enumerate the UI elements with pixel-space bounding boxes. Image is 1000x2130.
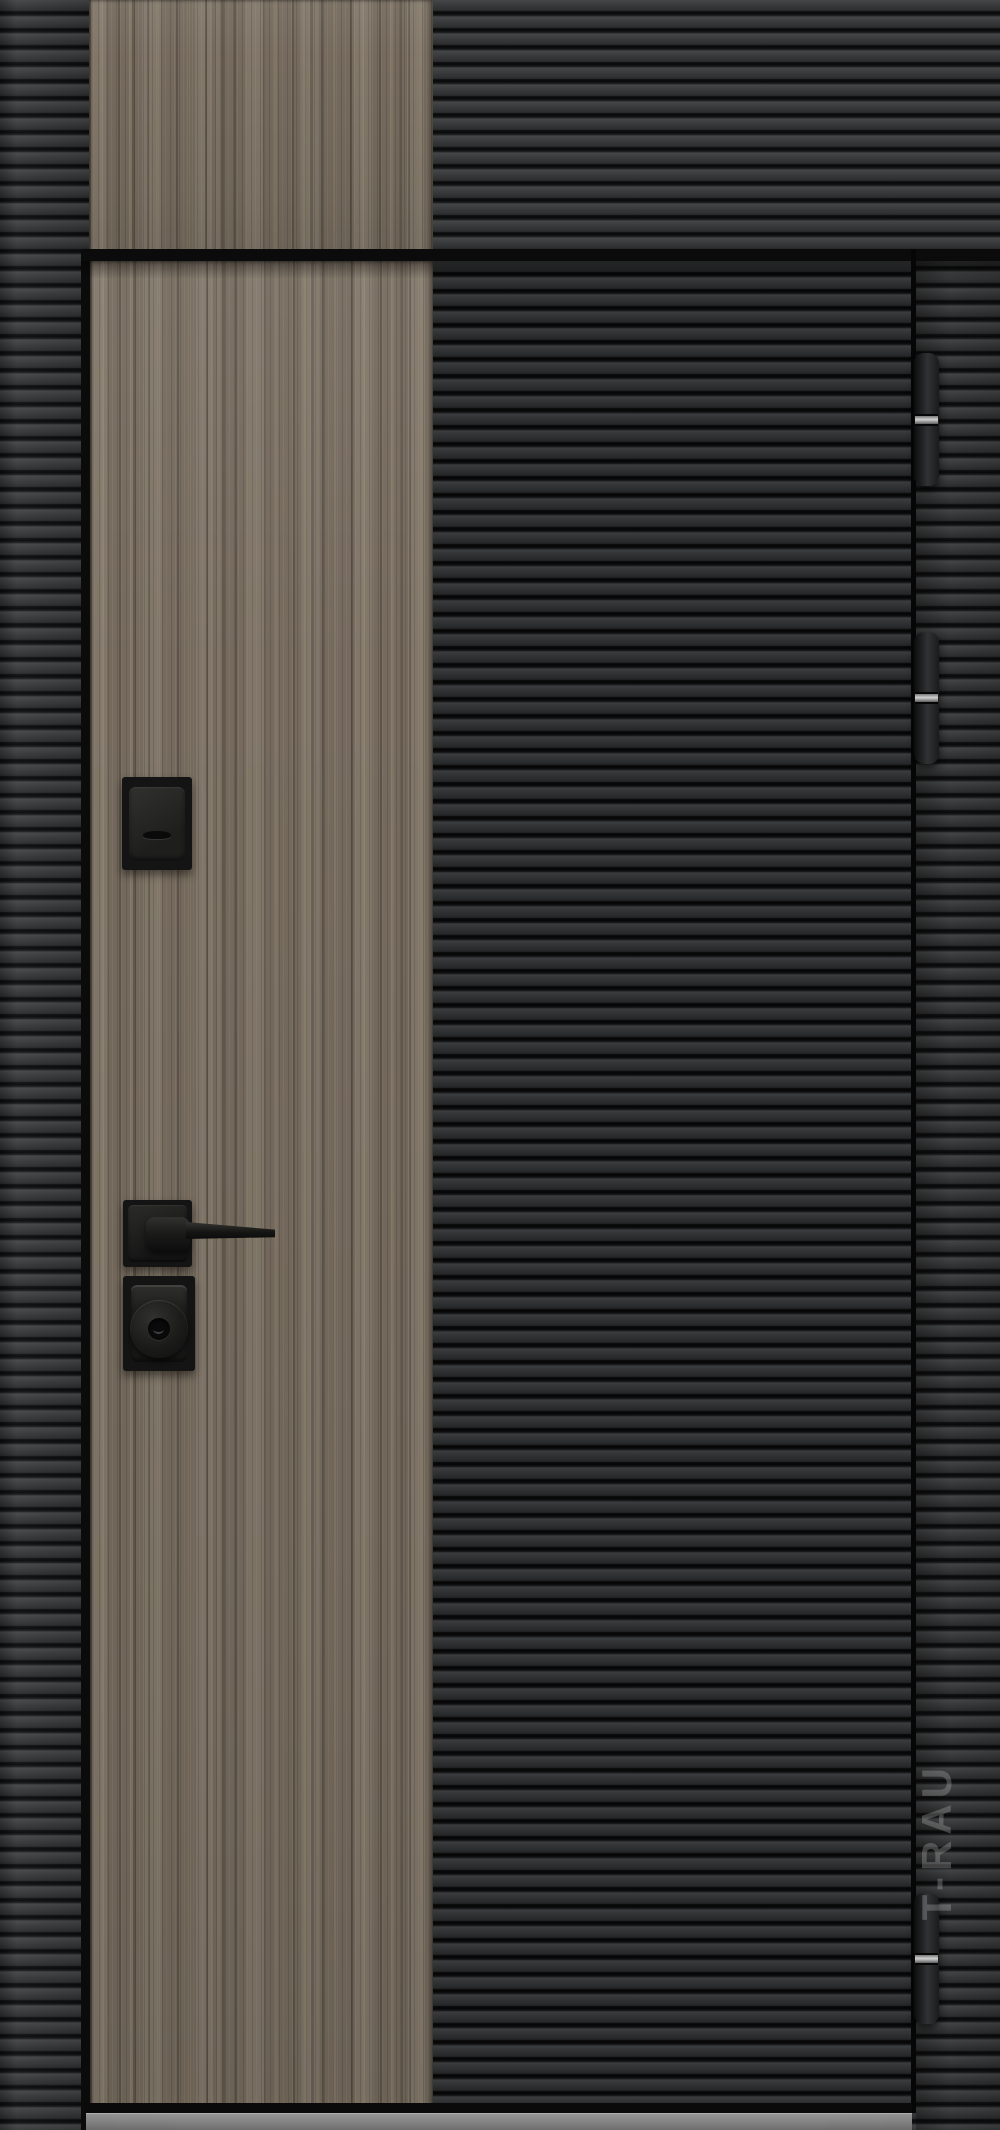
deadbolt-thumbturn-plate [122,777,192,870]
keyhole [148,1318,170,1340]
seam-shadow [81,261,1000,279]
brand-watermark-text: T-RAU [913,1762,961,1920]
door-frame-left-edge [81,249,90,2130]
hinge-middle [914,632,939,764]
handle-lever-neck [146,1217,190,1251]
door-fluted-panel [433,261,911,2108]
hinge-pin-band [915,694,938,702]
thumbturn-lever [143,831,171,839]
cylinder-inner-bevel [131,1285,187,1362]
left-wall-fluted-cladding [0,0,90,2130]
transom-wood-panel [89,0,433,255]
hinge-pin-band [915,416,938,424]
door-bottom-edge [86,2103,912,2113]
metal-threshold [86,2113,912,2130]
brand-watermark: T-RAU [908,1712,966,1970]
top-frame-seam [81,249,1000,261]
door-wood-accent-stripe [90,261,433,2108]
hinge-top [914,353,939,486]
thumbturn-inner-bevel [129,787,185,861]
cylinder-escutcheon-plate [123,1276,195,1371]
door-product-photo: T-RAU [0,0,1000,2130]
cylinder-boss [130,1300,188,1358]
